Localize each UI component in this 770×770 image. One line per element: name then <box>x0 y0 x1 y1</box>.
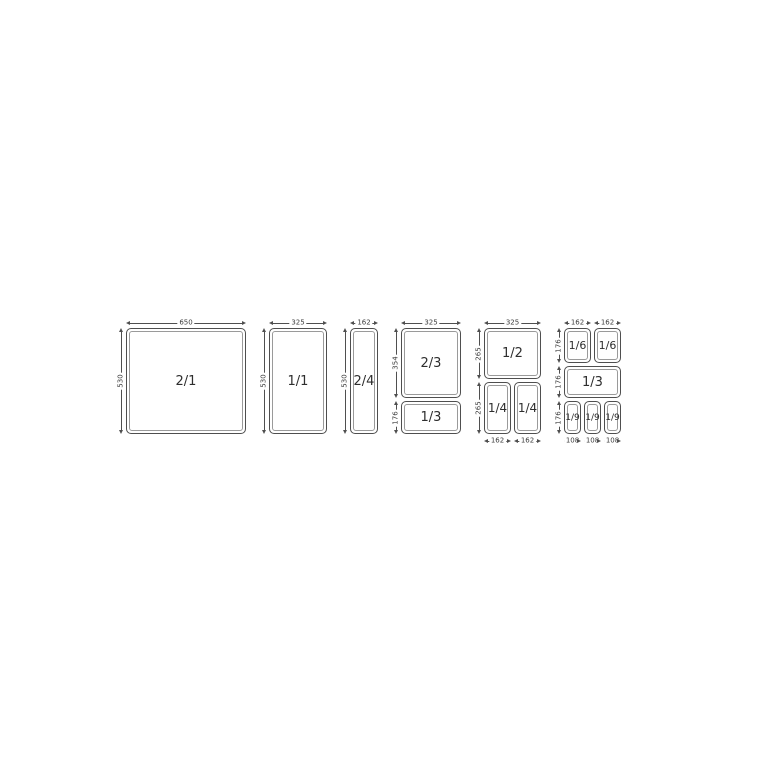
pan-area: 2/4 <box>350 328 378 434</box>
dimension-width: 162 <box>514 436 541 446</box>
arrow-down-icon <box>343 430 347 434</box>
corner-spacer <box>259 318 269 328</box>
pan-label: 1/4 <box>488 401 507 415</box>
pan-1-6: 1/6 <box>564 328 591 363</box>
pan-1-3: 1/3 <box>564 366 621 398</box>
pan-area: 2/1 <box>126 328 246 434</box>
arrow-right-icon <box>507 439 511 443</box>
bottom-dimensions: 108 108 108 <box>564 436 621 446</box>
dimension-height: 265 <box>474 328 484 379</box>
arrow-right-icon <box>457 321 461 325</box>
pan-label: 1/9 <box>565 413 579 423</box>
left-dimensions: 354 176 <box>391 328 401 434</box>
pan-2-1: 2/1 <box>126 328 246 434</box>
pan-label: 1/9 <box>585 413 599 423</box>
dimension-label: 325 <box>504 320 521 327</box>
pan-label: 2/3 <box>421 356 442 371</box>
pan-row: 1/9 1/9 1/9 <box>564 401 621 434</box>
arrow-right-icon <box>323 321 327 325</box>
top-dimensions: 325 <box>269 318 327 328</box>
pan-label: 2/1 <box>176 374 197 389</box>
bottom-dimensions: 162 162 <box>484 436 541 446</box>
dimension-width: 650 <box>126 318 246 328</box>
pan-1-1: 1/1 <box>269 328 327 434</box>
dimension-label: 265 <box>476 345 483 362</box>
arrow-down-icon <box>262 430 266 434</box>
left-dimensions: 265 265 <box>474 328 484 434</box>
pan-2-4: 2/4 <box>350 328 378 434</box>
dimension-label: 530 <box>342 372 349 389</box>
pan-label: 2/4 <box>354 374 375 389</box>
gastronorm-size-diagram: 650 530 2/1 325 <box>116 318 621 446</box>
arrow-right-icon <box>537 439 541 443</box>
arrow-right-icon <box>617 321 621 325</box>
arrow-right-icon <box>537 321 541 325</box>
pan-label: 1/2 <box>502 346 523 361</box>
dimension-height: 530 <box>259 328 269 434</box>
pan-label: 1/6 <box>599 339 617 352</box>
pan-1-9: 1/9 <box>564 401 581 434</box>
pan-1-3: 1/3 <box>401 401 461 434</box>
dimension-label: 530 <box>118 372 125 389</box>
group-gn-2-4: 162 530 2/4 <box>340 318 378 434</box>
pan-label: 1/3 <box>421 410 442 425</box>
arrow-right-icon <box>242 321 246 325</box>
pan-area: 2/3 1/3 <box>401 328 461 434</box>
arrow-down-icon <box>477 375 481 379</box>
corner-spacer <box>340 318 350 328</box>
dimension-width: 108 <box>584 436 601 446</box>
dimension-width: 325 <box>401 318 461 328</box>
dimension-height: 176 <box>554 366 564 398</box>
dimension-height: 354 <box>391 328 401 398</box>
pan-label: 1/6 <box>569 339 587 352</box>
pan-1-4: 1/4 <box>514 382 541 434</box>
dimension-width: 162 <box>594 318 621 328</box>
dimension-label: 325 <box>289 320 306 327</box>
dimension-height: 530 <box>116 328 126 434</box>
top-dimensions: 162 <box>350 318 378 328</box>
dimension-label: 162 <box>569 320 586 327</box>
left-dimensions: 176 176 176 <box>554 328 564 434</box>
arrow-right-icon <box>617 439 621 443</box>
pan-2-3: 2/3 <box>401 328 461 398</box>
dimension-width: 162 <box>564 318 591 328</box>
arrow-right-icon <box>374 321 378 325</box>
dimension-width: 162 <box>350 318 378 328</box>
top-dimensions: 325 <box>484 318 541 328</box>
pan-row: 1/6 1/6 <box>564 328 621 363</box>
corner-spacer <box>474 318 484 328</box>
corner-spacer <box>554 318 564 328</box>
dimension-label: 162 <box>519 438 536 445</box>
dimension-height: 176 <box>391 401 401 434</box>
dimension-label: 162 <box>489 438 506 445</box>
arrow-down-icon <box>394 394 398 398</box>
dimension-label: 162 <box>599 320 616 327</box>
group-gn-1-2-quarters: 325 265 265 1/2 1/ <box>474 318 541 446</box>
dimension-width: 108 <box>564 436 581 446</box>
left-dimensions: 530 <box>116 328 126 434</box>
group-gn-2-3-1-3: 325 354 176 2/3 1/3 <box>391 318 461 434</box>
pan-label: 1/3 <box>582 375 603 390</box>
dimension-label: 325 <box>422 320 439 327</box>
pan-area: 1/1 <box>269 328 327 434</box>
pan-label: 1/9 <box>605 413 619 423</box>
dimension-label: 650 <box>177 320 194 327</box>
dimension-height: 176 <box>554 401 564 434</box>
pan-1-9: 1/9 <box>584 401 601 434</box>
arrow-right-icon <box>587 321 591 325</box>
group-gn-sixths-ninths: 162 162 176 176 <box>554 318 621 446</box>
dimension-height: 265 <box>474 382 484 434</box>
arrow-right-icon <box>597 439 601 443</box>
top-dimensions: 325 <box>401 318 461 328</box>
dimension-height: 176 <box>554 328 564 363</box>
group-gn-2-1: 650 530 2/1 <box>116 318 246 434</box>
dimension-label: 176 <box>393 409 400 426</box>
group-gn-1-1: 325 530 1/1 <box>259 318 327 434</box>
left-dimensions: 530 <box>340 328 350 434</box>
arrow-down-icon <box>557 430 561 434</box>
top-dimensions: 650 <box>126 318 246 328</box>
dimension-label: 265 <box>476 399 483 416</box>
dimension-width: 108 <box>604 436 621 446</box>
arrow-down-icon <box>119 430 123 434</box>
pan-label: 1/1 <box>288 374 309 389</box>
dimension-height: 530 <box>340 328 350 434</box>
arrow-right-icon <box>577 439 581 443</box>
left-dimensions: 530 <box>259 328 269 434</box>
dimension-label: 162 <box>355 320 372 327</box>
pan-area: 1/2 1/4 1/4 <box>484 328 541 434</box>
corner-spacer <box>391 318 401 328</box>
pan-1-9: 1/9 <box>604 401 621 434</box>
pan-row: 1/4 1/4 <box>484 382 541 434</box>
pan-label: 1/4 <box>518 401 537 415</box>
dimension-width: 325 <box>269 318 327 328</box>
pan-1-4: 1/4 <box>484 382 511 434</box>
dimension-label: 530 <box>261 372 268 389</box>
dimension-width: 325 <box>484 318 541 328</box>
dimension-label: 176 <box>556 373 563 390</box>
pan-area: 1/6 1/6 1/3 1/9 1/9 1/9 <box>564 328 621 434</box>
arrow-down-icon <box>557 394 561 398</box>
dimension-label: 176 <box>556 337 563 354</box>
pan-1-6: 1/6 <box>594 328 621 363</box>
arrow-down-icon <box>394 430 398 434</box>
dimension-width: 162 <box>484 436 511 446</box>
dimension-label: 354 <box>393 354 400 371</box>
top-dimensions: 162 162 <box>564 318 621 328</box>
pan-1-2: 1/2 <box>484 328 541 379</box>
corner-spacer <box>116 318 126 328</box>
arrow-down-icon <box>557 359 561 363</box>
arrow-down-icon <box>477 430 481 434</box>
dimension-label: 176 <box>556 409 563 426</box>
